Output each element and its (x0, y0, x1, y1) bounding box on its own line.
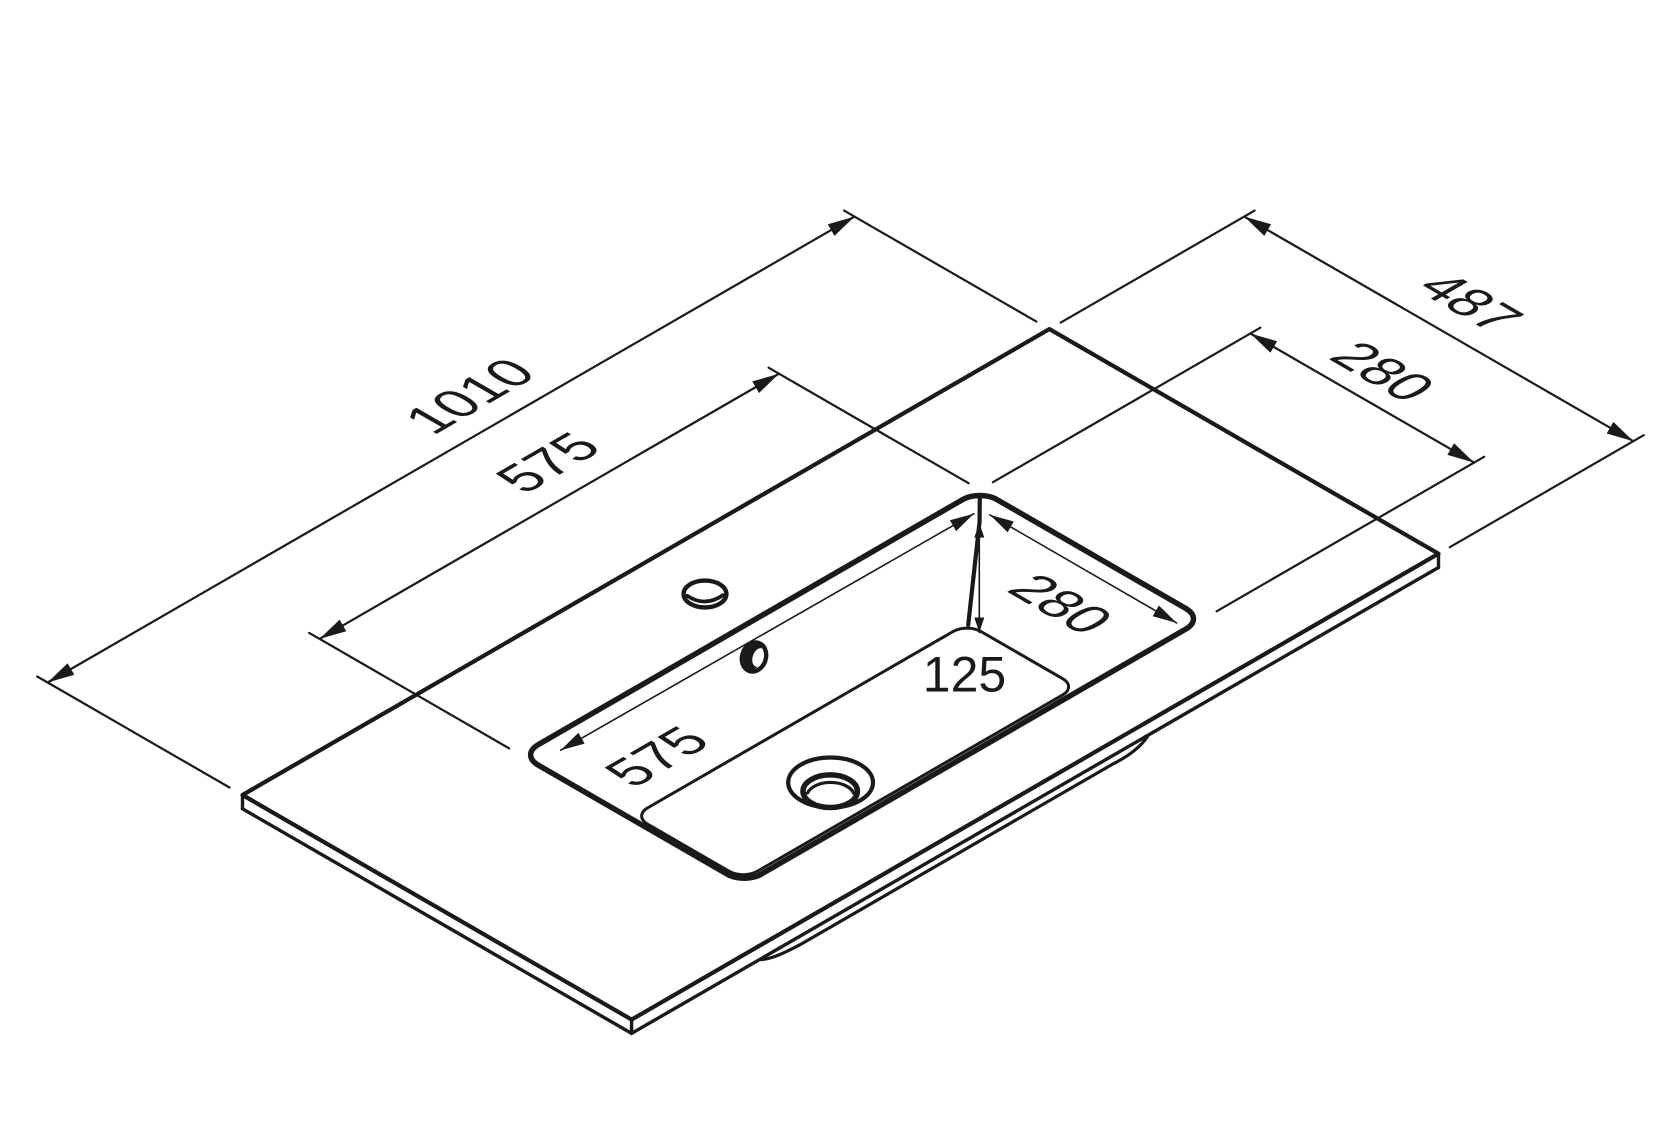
svg-text:125: 125 (923, 647, 1006, 703)
